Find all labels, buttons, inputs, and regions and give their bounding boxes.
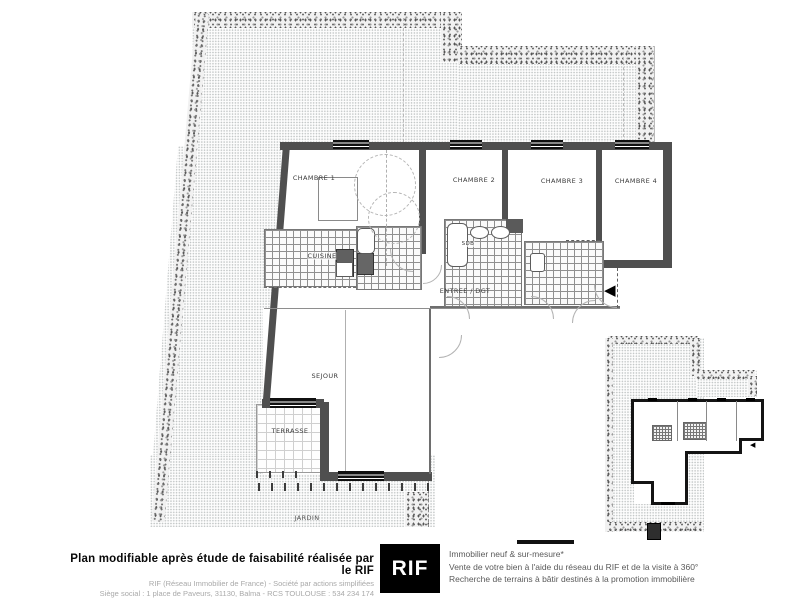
chambre1-dashed-line [386,150,388,266]
inset-window-4 [746,398,755,401]
pebble-border-right [636,46,654,146]
inset-wall-terrright [651,483,654,505]
inset-bath-block-2 [683,422,707,440]
footer-services: Immobilier neuf & sur-mesure* Vente de v… [449,548,698,586]
terrace-fence-ticks [256,471,308,478]
inset-wall-right [761,399,764,441]
window-terrace-bay [270,398,316,408]
washbasin-1 [470,226,489,239]
wc [530,253,545,272]
room-label-chambre3: CHAMBRE 3 [541,177,583,185]
pebble-border-top [192,12,458,28]
inset-wall-left [631,399,634,484]
inset-wall-sejright [685,451,688,505]
bed-chambre1 [318,177,358,221]
entrance-arrow-icon: ◀ [604,283,616,298]
garden-dim-line-2 [623,52,625,142]
footer-disclaimer-line2: RIF (Réseau Immobilier de France) - Soci… [60,579,374,588]
inset-plan: ◀ [600,330,798,542]
footer-disclaimer-line3: Siège social : 1 place de Paveurs, 31130… [60,589,374,598]
terrace-floor [256,404,324,473]
inset-garden-structure [647,523,661,540]
window-chambre4 [615,140,649,149]
room-label-terrasse: TERRASSE [272,427,309,435]
tree-dashed-circle-2 [368,192,420,244]
kitchen-dashed-limit [264,287,356,289]
inset-window-sejour [661,502,675,505]
room-label-chambre2: CHAMBRE 2 [453,176,495,184]
footer-services-line3: Recherche de terrains à bâtir destinés à… [449,573,698,586]
room-label-entree: ENTREE / DGT [440,287,491,295]
garden-dim-line-1 [403,18,405,142]
room-label-sejour: SEJOUR [312,372,339,380]
scale-bar [517,540,574,544]
room-label-chambre1: CHAMBRE 1 [293,174,335,182]
inset-room-line-3 [736,401,737,441]
room-label-jardin: JARDIN [295,514,320,522]
wall-right [663,148,672,267]
inset-pebble-left [605,338,613,532]
footer-disclaimer-title: Plan modifiable après étude de faisabili… [60,553,374,577]
rif-logo-text: RIF [392,557,429,581]
inset-room-line-1 [677,401,678,441]
footer-services-line1: Immobilier neuf & sur-mesure* [449,548,698,561]
kitchen-appliance-white [336,262,353,277]
entry-dashed-line [617,268,619,308]
inset-room-line-2 [706,401,707,441]
wall-terrace-right [320,402,329,481]
garden-fence-ticks [258,483,430,491]
inset-pebble-mid [695,370,755,379]
window-chambre3 [531,140,563,149]
inset-floor-3 [634,452,686,504]
hall-top-line [264,308,620,309]
garden-area-top-left [192,12,458,147]
inset-pebble-top [608,336,698,344]
room-label-sdb: SDB [462,241,475,247]
pebble-patch-bottom-right [405,492,429,527]
footer-services-line2: Vente de votre bien à l'aide du réseau d… [449,561,698,574]
window-chambre1 [333,140,369,149]
inset-window-3 [717,398,726,401]
inset-pebble-right [748,376,757,396]
window-sejour [338,471,384,481]
footer-disclaimer: Plan modifiable après étude de faisabili… [60,553,374,598]
wall-chambre4-bottom [599,260,672,268]
room-label-chambre4: CHAMBRE 4 [615,177,657,185]
floor-plan-page: CHAMBRE 1 CHAMBRE 2 CHAMBRE 3 CHAMBRE 4 … [0,0,800,600]
rif-logo: RIF [380,544,440,593]
bathroom3-tiled-floor [524,241,604,305]
inset-wall-terrtop [632,481,654,484]
inset-wall-hallbottom [687,451,742,454]
inset-entrance-arrow-icon: ◀ [750,442,755,449]
room-label-cuisine: CUISINE [307,252,336,260]
washbasin-2 [491,226,510,239]
inset-window-1 [648,398,657,401]
bathroom-dark-unit [357,253,374,275]
inset-bath-block-1 [652,425,672,441]
sejour-mid-line [345,310,346,472]
inset-window-2 [688,398,697,401]
sejour-right-line [429,308,431,474]
window-chambre2 [450,140,482,149]
